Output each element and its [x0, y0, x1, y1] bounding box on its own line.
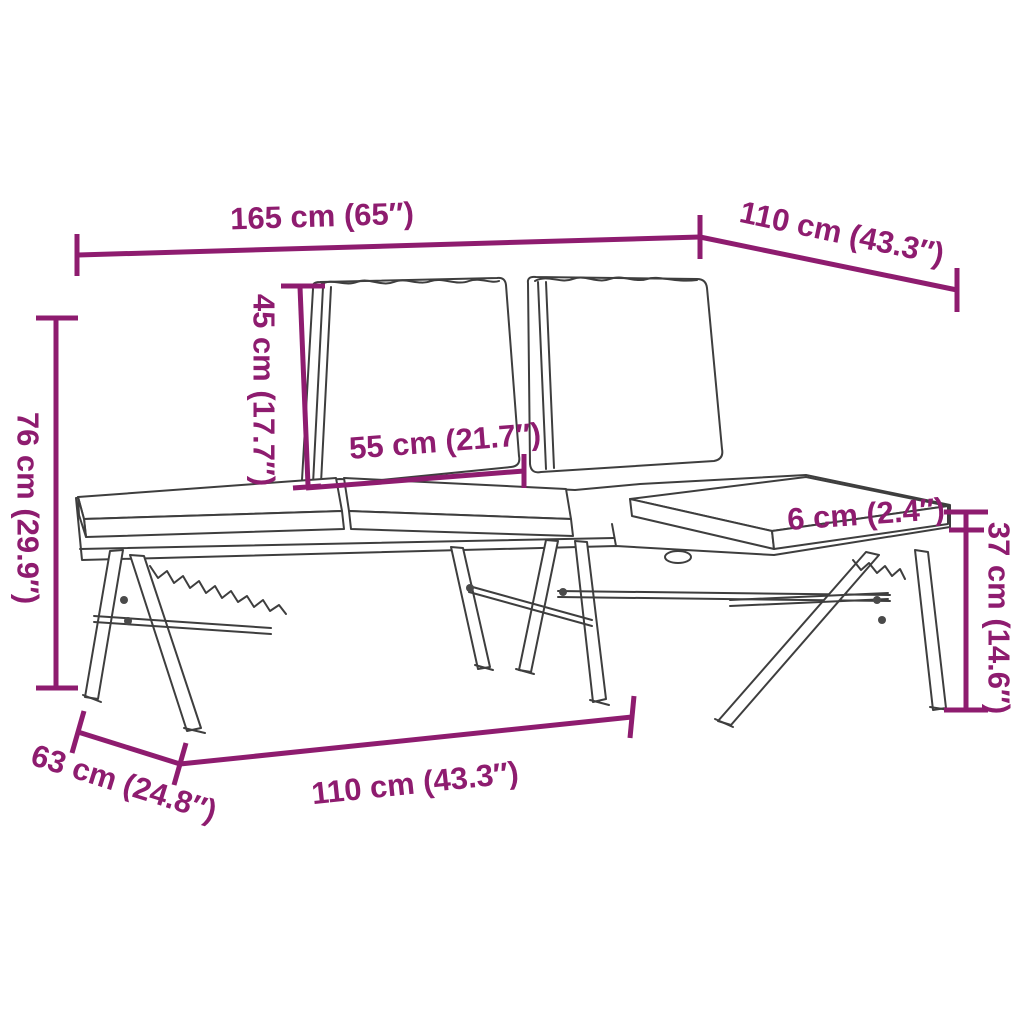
dim-label-seat-height: 37 cm (14.6″) [982, 522, 1017, 714]
dim-label-right-section-depth: 110 cm (43.3″) [737, 194, 948, 271]
right-leg-assembly [665, 550, 949, 727]
dim-label-total-height: 76 cm (29.9″) [11, 412, 46, 604]
dim-total-length: 165 cm (65″) [77, 196, 700, 276]
dim-front-length: 110 cm (43.3″) [180, 696, 634, 811]
dim-label-bench-depth: 63 cm (24.8″) [27, 737, 221, 828]
left-adjuster-rack [150, 566, 286, 614]
right-backrest-cushion [528, 277, 722, 472]
dim-right-section-depth: 110 cm (43.3″) [700, 194, 957, 312]
dimension-diagram-canvas: 165 cm (65″) 110 cm (43.3″) 76 cm (29.9″… [0, 0, 1024, 1024]
dim-total-height: 76 cm (29.9″) [11, 318, 79, 688]
left-leg-assembly [83, 550, 286, 733]
dim-label-front-length: 110 cm (43.3″) [310, 755, 520, 812]
product-dimension-diagram: 165 cm (65″) 110 cm (43.3″) 76 cm (29.9″… [0, 0, 1024, 1024]
middle-leg-assembly [451, 540, 890, 705]
dim-label-total-length: 165 cm (65″) [230, 196, 415, 237]
dim-label-backrest-height: 45 cm (17.7″) [247, 294, 282, 486]
fold-roller [665, 551, 691, 563]
middle-seat-cushion [344, 478, 573, 536]
